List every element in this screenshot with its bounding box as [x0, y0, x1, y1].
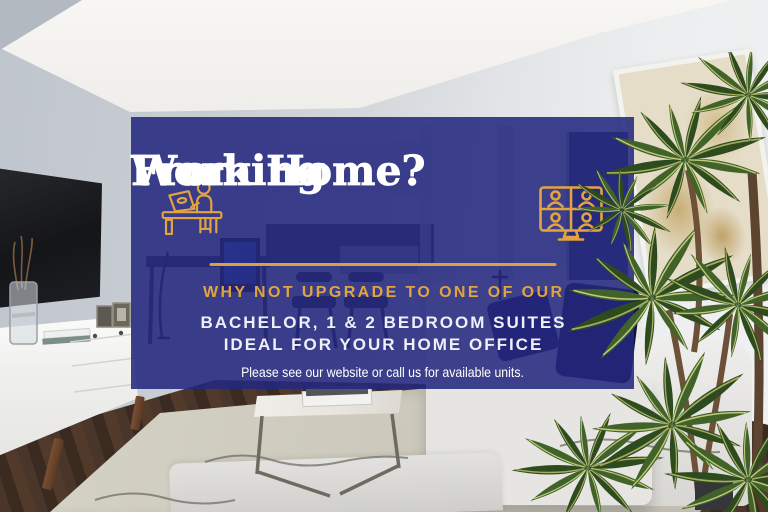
television: [0, 168, 102, 308]
headline-line2: From Home?: [131, 150, 426, 193]
footnote: Please see our website or call us for av…: [161, 364, 604, 380]
gold-divider: [209, 263, 556, 266]
subheading: WHY NOT UPGRADE TO ONE OF OUR: [131, 284, 634, 302]
ottoman-bench: [169, 452, 503, 512]
video-call-monitor-icon: [539, 186, 605, 246]
body-line-1: BACHELOR, 1 & 2 BEDROOM SUITES: [131, 313, 634, 333]
promo-content: Working From Home? WHY NOT UPGRADE TO ON…: [131, 117, 634, 389]
apartment-promo-image: Working From Home? WHY NOT UPGRADE TO ON…: [0, 0, 768, 512]
body-line-2: IDEAL FOR YOUR HOME OFFICE: [131, 335, 634, 355]
